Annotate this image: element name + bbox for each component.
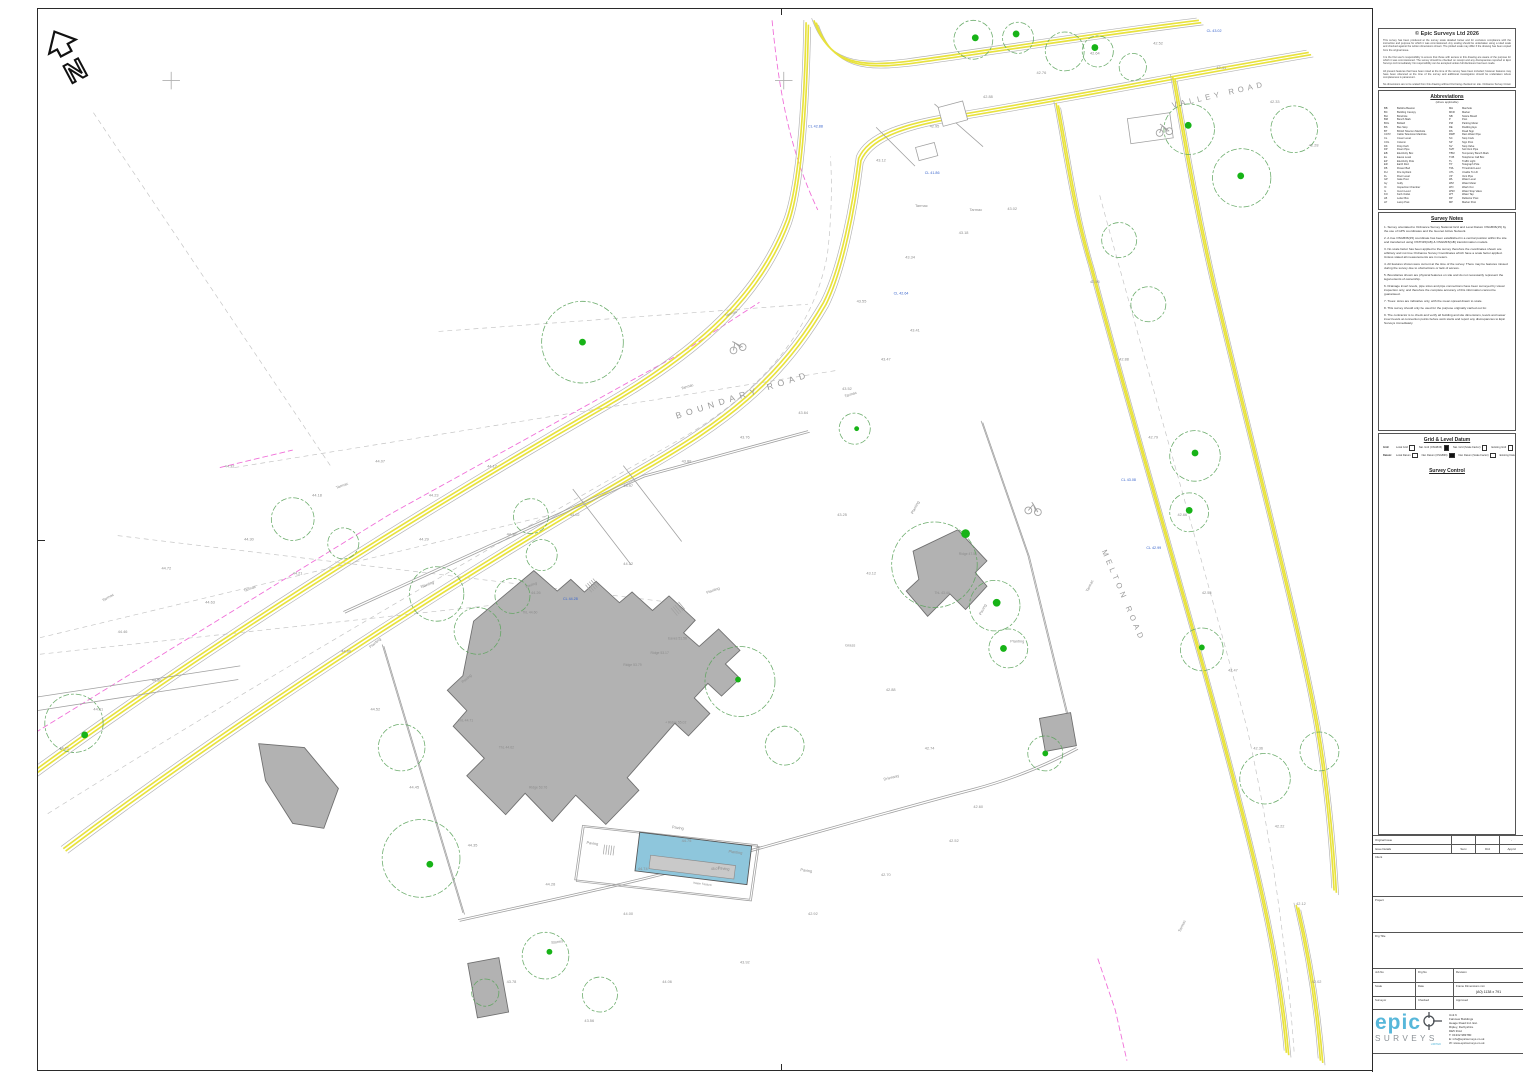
bicycle-icon bbox=[1024, 501, 1042, 516]
datum-heading: Grid & Level Datum bbox=[1379, 437, 1515, 443]
spot-label: Ridge 53.17 bbox=[651, 651, 669, 655]
yellow-edge-line bbox=[814, 20, 1199, 63]
datum-option-label: Existing Grid bbox=[1491, 446, 1506, 449]
company-address: Unit 6Fairview BuildingsHeage Road Ind. … bbox=[1449, 1013, 1519, 1045]
abbr-code: LP bbox=[1384, 201, 1397, 205]
spot-label: Tarmac bbox=[724, 309, 738, 318]
disclaimer-paragraph: No dimensions are to be scaled from this… bbox=[1379, 81, 1515, 88]
abbr-term: Lamp Post bbox=[1397, 201, 1409, 205]
datum-options: Local DatumNat. Datum (OSGB36)Nat. Datum… bbox=[1396, 453, 1516, 459]
checkbox-unchecked bbox=[1409, 445, 1415, 451]
address-line: W: www.epicsurveys.co.uk bbox=[1449, 1041, 1519, 1045]
checked-label: Checked bbox=[1416, 997, 1453, 1002]
spot-label: 44.60 bbox=[341, 648, 351, 653]
road-name-label: VALLEY ROAD bbox=[1171, 79, 1267, 109]
tree-dot bbox=[972, 34, 979, 41]
disclaimer-paragraph: It is the first user's responsibility to… bbox=[1379, 54, 1515, 66]
spot-label: 42.74 bbox=[925, 746, 936, 751]
survey-note: 4. All features shown were current at th… bbox=[1384, 262, 1510, 270]
datum-option: Local Grid bbox=[1396, 445, 1415, 451]
spot-label: 44.29 bbox=[419, 536, 429, 541]
spot-label: ThL 44.62 bbox=[499, 746, 514, 750]
logo-limited-text: LIMITED bbox=[1375, 1043, 1441, 1046]
spot-label: 43.52 bbox=[842, 386, 852, 391]
wall-line bbox=[983, 423, 1072, 732]
spot-label: Stones bbox=[551, 938, 564, 945]
disclaimer-paragraph: All present features that have been note… bbox=[1379, 68, 1515, 80]
construction-line bbox=[48, 156, 832, 813]
road-name-label: BOUNDARY ROAD bbox=[674, 369, 811, 421]
survey-notes-box: Survey Notes 1. Survey orientated to Ord… bbox=[1378, 212, 1516, 431]
copyright-box: © Epic Surveys Ltd 2026 This survey has … bbox=[1378, 28, 1516, 88]
kerb-line bbox=[812, 18, 1197, 61]
tree-canopy bbox=[45, 694, 103, 752]
spot-label: 44.32 bbox=[225, 464, 235, 469]
spot-label: 42.92 bbox=[808, 911, 818, 916]
tree-canopy bbox=[1131, 287, 1166, 322]
datum-option-label: Local Grid bbox=[1396, 446, 1408, 449]
logo-epic-text: epic bbox=[1375, 1014, 1445, 1033]
spot-label: 44.12 bbox=[623, 561, 633, 566]
spot-label: Planting bbox=[420, 580, 435, 589]
spot-label: Paving bbox=[800, 867, 812, 873]
tree-dot bbox=[854, 426, 859, 431]
site-line bbox=[623, 466, 681, 542]
site-plan-drawing: TarmacTarmacTarmacTarmacTarmacTarmacTarm… bbox=[38, 9, 1371, 1071]
grid-options-row: Grid: Local GridNat. Grid (OSGB36)Nat. G… bbox=[1383, 445, 1511, 451]
site-line bbox=[573, 489, 631, 565]
spot-label: 42.41 bbox=[1216, 65, 1226, 70]
datum-label: Datum: bbox=[1383, 454, 1396, 457]
spot-label: 43.02 bbox=[1007, 206, 1017, 211]
spot-label: 42.64 bbox=[1090, 50, 1101, 55]
tree-canopy bbox=[271, 498, 314, 541]
survey-note: 6. Drainage invert levels, pipe sizes an… bbox=[1384, 284, 1510, 296]
tree-canopy bbox=[526, 540, 557, 571]
crosshair-icon bbox=[1421, 1010, 1443, 1032]
surveyor-label: Surveyor bbox=[1373, 997, 1386, 1002]
spot-label: 44.02 bbox=[570, 512, 580, 517]
cover-level-label: CL 42.99 bbox=[1146, 546, 1161, 550]
building bbox=[447, 571, 740, 825]
drd-header: Drd bbox=[1475, 845, 1499, 853]
spot-label: 44.00 bbox=[623, 911, 633, 916]
spot-label: Paving bbox=[978, 603, 988, 616]
survey-note: 7. Trees: sizes are indicative only, wit… bbox=[1384, 299, 1510, 303]
survey-note: 1. Survey orientated to Ordnance Survey … bbox=[1384, 225, 1510, 233]
job-row: Job No Drg No Revision bbox=[1373, 968, 1523, 982]
abbreviations-box: Abbreviations (where applicable) BBBelis… bbox=[1378, 90, 1516, 210]
step-line bbox=[603, 845, 604, 855]
kerb-line bbox=[1177, 81, 1338, 895]
spot-label: 45.07 bbox=[711, 867, 720, 871]
date-label: Date bbox=[1416, 983, 1453, 988]
revision-label: Revision bbox=[1454, 969, 1523, 974]
spot-label: 42.52 bbox=[1153, 41, 1163, 46]
datum-option: Nat. Grid (Scale Factor) bbox=[1453, 445, 1487, 451]
checkbox-unchecked bbox=[1412, 453, 1418, 459]
drg-title-label: Drg Title bbox=[1373, 933, 1523, 938]
spot-label: ThL 43.44 bbox=[934, 591, 949, 595]
spot-label: 42.60 bbox=[973, 804, 983, 809]
spot-label: Ridge 53.76 bbox=[529, 785, 547, 789]
spot-label: Paving bbox=[586, 840, 598, 846]
cover-level-label: CL 44.28 bbox=[563, 597, 578, 601]
tree-dot bbox=[1185, 122, 1192, 129]
spot-label: ThL 44.60 bbox=[522, 610, 537, 614]
construction-line bbox=[40, 516, 546, 638]
logo-surveys-text: SURVEYS bbox=[1375, 1034, 1445, 1043]
original-issue-row: Original Issue - bbox=[1373, 835, 1523, 844]
spot-label: Tarmac bbox=[680, 382, 694, 391]
survey-notes-heading: Survey Notes bbox=[1379, 216, 1515, 222]
survey-note: 5. Boundaries shown are physical feature… bbox=[1384, 273, 1510, 281]
steps bbox=[603, 845, 614, 856]
spot-label: 42.70 bbox=[881, 872, 891, 877]
spot-label: 42.36 bbox=[1253, 746, 1263, 751]
scale-row: Scale Date Frame Dimensions mm (A0) 1138… bbox=[1373, 982, 1523, 996]
tree-dot bbox=[1042, 750, 1048, 756]
survey-note: 2. A true OSGB36(15) coordinate has been… bbox=[1384, 236, 1510, 244]
abbr-code: MP bbox=[1449, 201, 1462, 205]
approved-label: Approved bbox=[1454, 997, 1523, 1002]
spot-label: 42.95 bbox=[930, 123, 940, 128]
spot-label: Planting bbox=[368, 636, 382, 649]
logo-epic-word: epic bbox=[1375, 1011, 1421, 1034]
datum-box: Grid & Level Datum Grid: Local GridNat. … bbox=[1378, 433, 1516, 835]
checkbox-checked bbox=[1444, 445, 1450, 451]
spot-label: Grass bbox=[845, 642, 855, 647]
company-box: epic SURVEYS LIMITED Unit 6Fairview Buil… bbox=[1373, 1009, 1523, 1054]
scale-label: Scale bbox=[1373, 983, 1382, 988]
spot-label: Tarmac bbox=[1177, 919, 1187, 933]
survey-note: 3. No scale factor has been applied to t… bbox=[1384, 247, 1510, 259]
construction-line bbox=[93, 113, 331, 468]
cover-level-label: CL 42.88 bbox=[808, 124, 823, 128]
spot-label: 42.66 bbox=[1178, 512, 1188, 517]
datum-option: Nat. Datum (Scale Factor) bbox=[1459, 453, 1496, 459]
abbreviations-left-column: BBBelisha BeaconBCBuilding CanopyBHBoreh… bbox=[1384, 107, 1445, 205]
tree-dot bbox=[1192, 450, 1199, 457]
tree-canopy bbox=[1102, 223, 1137, 258]
issue-cell-surv bbox=[1451, 836, 1475, 844]
datum-option-label: Nat. Datum (Scale Factor) bbox=[1459, 454, 1489, 457]
step-line bbox=[606, 845, 607, 855]
tree-canopy bbox=[382, 820, 460, 898]
project-label: Project bbox=[1373, 897, 1523, 902]
tree-dot bbox=[961, 529, 970, 538]
structure bbox=[1127, 113, 1173, 144]
spot-label: 43.56 bbox=[584, 1018, 594, 1023]
kerb-line bbox=[1054, 101, 1284, 1051]
datum-option-label: Nat. Grid (Scale Factor) bbox=[1453, 446, 1480, 449]
tree-canopy bbox=[765, 726, 804, 765]
surveyor-row: Surveyor Checked Approved bbox=[1373, 996, 1523, 1009]
spot-label: 42.02 bbox=[1312, 979, 1322, 984]
grid-label: Grid: bbox=[1383, 446, 1396, 449]
spot-label: 43.55 bbox=[857, 298, 867, 303]
datum-option-label: Local Datum bbox=[1396, 454, 1411, 457]
spot-label: 42.88 bbox=[983, 94, 993, 99]
spot-label: 44.28 bbox=[546, 882, 556, 887]
tree-dot bbox=[1237, 172, 1244, 179]
step-line bbox=[608, 845, 609, 855]
tree-canopy bbox=[1240, 753, 1291, 804]
spot-label: Planting bbox=[910, 500, 921, 515]
spot-label: 44.18 bbox=[312, 493, 322, 498]
spot-label: Tarmac bbox=[243, 584, 257, 593]
spot-label: 42.76 bbox=[1037, 70, 1047, 75]
tree-dot bbox=[1199, 645, 1205, 651]
spot-label: 42.88 bbox=[1119, 357, 1129, 362]
tree-dot bbox=[1013, 31, 1020, 38]
spot-label: 43.34 bbox=[905, 255, 916, 260]
tree-canopy bbox=[378, 724, 425, 771]
spot-label: Paving bbox=[672, 824, 684, 830]
checkbox-unchecked bbox=[1508, 445, 1514, 451]
north-arrow-icon: N bbox=[36, 20, 102, 98]
spot-label: 44.23 bbox=[429, 493, 439, 498]
survey-control-heading: Survey Control bbox=[1379, 468, 1515, 474]
spot-label: 44.63 bbox=[205, 600, 215, 605]
yellow-edge-line bbox=[1056, 103, 1286, 1053]
frame-dim-value: (A0) 1138 x 791 bbox=[1454, 990, 1523, 994]
spot-label: ThL 44.71 bbox=[458, 718, 473, 722]
spot-label: 44.72 bbox=[161, 566, 171, 571]
drg-no-label: Drg No bbox=[1416, 969, 1453, 974]
grid-options: Local GridNat. Grid (OSGB36)Nat. Grid (S… bbox=[1396, 445, 1516, 451]
title-panel: © Epic Surveys Ltd 2026 This survey has … bbox=[1372, 8, 1522, 1072]
issue-cell-apprd: - bbox=[1499, 836, 1523, 844]
spot-label: 42.33 bbox=[1270, 99, 1280, 104]
copyright-disclaimer: This survey has been produced at the sur… bbox=[1379, 37, 1515, 88]
construction-line bbox=[1100, 195, 1294, 1053]
abbr-term: Marker Post bbox=[1462, 201, 1476, 205]
issue-details-label: Issue Details bbox=[1373, 846, 1391, 851]
spot-label: 44.52 bbox=[371, 707, 381, 712]
spot-label: 44.50 bbox=[152, 677, 162, 682]
checkbox-unchecked bbox=[1490, 453, 1496, 459]
spot-label: Tarmac bbox=[1084, 579, 1094, 593]
wall-line bbox=[981, 421, 1070, 730]
surv-header: Surv bbox=[1451, 845, 1475, 853]
spot-label: 43.92 bbox=[740, 959, 750, 964]
spot-label: 44.07 bbox=[375, 459, 385, 464]
frame-dim-label: Frame Dimensions mm bbox=[1454, 983, 1523, 988]
spot-label: 42.96 bbox=[1090, 279, 1100, 284]
datum-option: Nat. Grid (OSGB36) bbox=[1419, 445, 1449, 451]
spot-label: Water Feature bbox=[693, 881, 712, 887]
spot-label: 44.46 bbox=[118, 629, 128, 634]
spot-label: 44.11 bbox=[507, 532, 516, 537]
spot-label: 42.88 bbox=[886, 687, 896, 692]
survey-notes-list: 1. Survey orientated to Ordnance Survey … bbox=[1379, 225, 1515, 325]
tree-dot bbox=[993, 599, 1001, 607]
spot-label: 43.12 bbox=[866, 571, 876, 576]
tree-dot bbox=[547, 949, 553, 955]
spot-label: 44.74 bbox=[638, 866, 649, 871]
building bbox=[468, 958, 509, 1018]
structure bbox=[938, 101, 967, 126]
datum-options-row: Datum: Local DatumNat. Datum (OSGB36)Nat… bbox=[1383, 453, 1511, 459]
tree-dot bbox=[579, 339, 586, 346]
tree-canopy bbox=[409, 567, 463, 621]
checkbox-unchecked bbox=[1482, 445, 1488, 451]
spot-label: Ridge 47.51 bbox=[959, 552, 977, 556]
client-box: Client bbox=[1373, 853, 1523, 896]
spot-label: 43.18 bbox=[959, 230, 969, 235]
project-box: Project bbox=[1373, 896, 1523, 932]
boundary-line bbox=[1098, 959, 1127, 1061]
building bbox=[1039, 713, 1076, 752]
datum-option: Existing Grid bbox=[1491, 445, 1513, 451]
spot-label: Tarmac bbox=[335, 481, 349, 490]
client-label: Client bbox=[1373, 854, 1523, 859]
abbr-row: MPMarker Post bbox=[1449, 201, 1510, 205]
construction-line bbox=[439, 304, 808, 331]
spot-label: 42.12 bbox=[1296, 901, 1306, 906]
issue-cell-drd bbox=[1475, 836, 1499, 844]
checkbox-checked bbox=[1449, 453, 1455, 459]
drg-title-box: Drg Title bbox=[1373, 932, 1523, 968]
spot-label: Ridge 53.79 bbox=[623, 663, 641, 667]
spot-label: Tarmac bbox=[969, 207, 982, 212]
cover-level-label: CL 43.08 bbox=[1121, 478, 1136, 482]
company-logo: epic SURVEYS LIMITED bbox=[1375, 1014, 1445, 1046]
pool bbox=[635, 832, 752, 884]
spot-label: 44.75 bbox=[682, 838, 692, 843]
apprd-header: Apprd bbox=[1499, 845, 1523, 853]
cover-level-label: CL 42.64 bbox=[894, 291, 909, 295]
spot-label: Tarmac bbox=[101, 592, 115, 603]
construction-line bbox=[234, 370, 837, 467]
spot-label: 42.28 bbox=[1309, 143, 1319, 148]
disclaimer-paragraph: This survey has been produced at the sur… bbox=[1379, 37, 1515, 52]
date-cell: Date bbox=[1415, 983, 1453, 996]
datum-option-label: Nat. Datum (OSGB36) bbox=[1422, 454, 1448, 457]
tree-canopy bbox=[582, 977, 617, 1012]
spot-label: Eaves 51.58 bbox=[668, 637, 687, 641]
spot-label: 43.88 bbox=[682, 459, 692, 464]
abbreviations-list: BBBelisha BeaconBCBuilding CanopyBHBoreh… bbox=[1379, 104, 1515, 208]
spot-label: 43.97 bbox=[623, 483, 633, 488]
spot-label: 43.12 bbox=[876, 157, 886, 162]
building bbox=[259, 744, 339, 829]
spot-label: 44.21 bbox=[59, 746, 69, 751]
spot-label: Driveway bbox=[883, 773, 900, 782]
spot-label: 44.21 bbox=[293, 571, 303, 576]
spot-label: Tarmac bbox=[915, 203, 928, 208]
tree-canopy bbox=[1119, 53, 1146, 80]
spot-label: Tarmac bbox=[844, 390, 858, 399]
datum-option: Local Datum bbox=[1396, 453, 1418, 459]
spot-label: 43.78 bbox=[507, 979, 517, 984]
spot-label: 44.17 bbox=[487, 464, 497, 469]
abbreviations-right-column: MHManholeMKRMarkerNBNotice BoardPPostPMP… bbox=[1449, 107, 1510, 205]
bicycle-frame bbox=[1028, 502, 1039, 512]
survey-note: 8. This survey should only be used for t… bbox=[1384, 306, 1510, 310]
drg-no-cell: Drg No bbox=[1415, 969, 1453, 982]
step-line bbox=[613, 846, 614, 856]
datum-option: Nat. Datum (OSGB36) bbox=[1422, 453, 1455, 459]
road-name-label: MELTON ROAD bbox=[1100, 548, 1147, 643]
tree-dot bbox=[81, 732, 88, 739]
spot-label: + Ridge 55.02 bbox=[665, 720, 686, 724]
north-label: N bbox=[59, 52, 91, 89]
spot-label: 43.25 bbox=[837, 512, 847, 517]
frame-dim-cell: Frame Dimensions mm (A0) 1138 x 791 bbox=[1453, 983, 1523, 996]
spot-label: 42.52 bbox=[949, 838, 959, 843]
building bbox=[906, 530, 987, 617]
spot-label: 43.76 bbox=[740, 434, 750, 439]
spot-label: 44.06 bbox=[662, 979, 672, 984]
structure bbox=[916, 142, 938, 160]
tree-dot bbox=[735, 677, 741, 683]
survey-note: 9. The contractor is to check and verify… bbox=[1384, 313, 1510, 325]
checked-cell: Checked bbox=[1415, 997, 1453, 1009]
abbr-row: LPLamp Post bbox=[1384, 201, 1445, 205]
spot-label: 42.55 bbox=[1202, 590, 1212, 595]
datum-option-label: Nat. Grid (OSGB36) bbox=[1419, 446, 1442, 449]
original-issue-label: Original Issue bbox=[1373, 837, 1392, 842]
spot-label: 44.41 bbox=[93, 707, 103, 712]
spot-label: 42.79 bbox=[1148, 434, 1158, 439]
revision-cell: Revision bbox=[1453, 969, 1523, 982]
step-line bbox=[611, 846, 612, 856]
wall-line bbox=[382, 645, 463, 913]
tree-dot bbox=[1000, 645, 1007, 652]
issue-details-row: Issue Details Surv Drd Apprd bbox=[1373, 844, 1523, 853]
tree-canopy bbox=[989, 629, 1028, 668]
datum-option-label: Existing Datum bbox=[1500, 454, 1516, 457]
spot-label: 44.45 bbox=[409, 784, 419, 789]
tree-dot bbox=[426, 861, 433, 868]
spot-label: 43.41 bbox=[910, 327, 920, 332]
kerb-line bbox=[1061, 108, 1291, 1058]
spot-label: 43.47 bbox=[881, 357, 891, 362]
approved-cell: Approved bbox=[1453, 997, 1523, 1009]
spot-label: 44.35 bbox=[468, 843, 478, 848]
spot-label: 42.22 bbox=[1275, 823, 1285, 828]
cover-level-label: CL 43.02 bbox=[1207, 29, 1222, 33]
bicycle-icon bbox=[727, 338, 747, 355]
spot-label: 42.47 bbox=[1228, 668, 1238, 673]
job-no-label: Job No bbox=[1373, 969, 1384, 974]
spot-label: 44.30 bbox=[244, 536, 254, 541]
spot-label: 44.26 bbox=[531, 590, 541, 595]
cover-level-label: CL 41.86 bbox=[925, 171, 940, 175]
spot-label: 43.64 bbox=[798, 410, 809, 415]
spot-label: Planting bbox=[1010, 639, 1024, 644]
spot-label: Planting bbox=[706, 585, 721, 594]
datum-option: Existing Datum bbox=[1500, 453, 1516, 459]
